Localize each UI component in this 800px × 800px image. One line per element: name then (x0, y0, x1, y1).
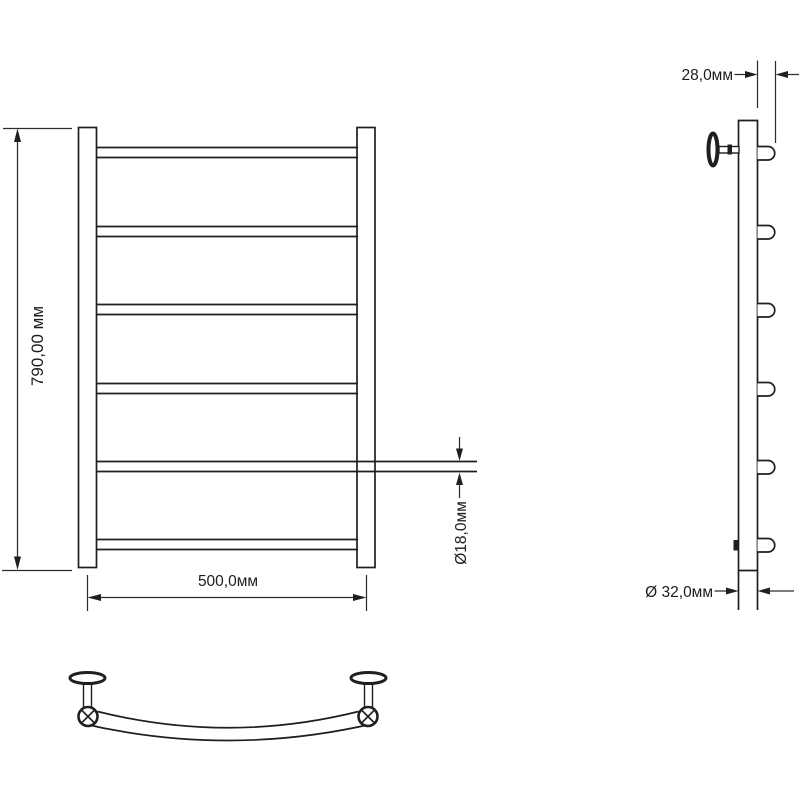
rung-profile (758, 461, 775, 475)
dimension-rung-diameter-label: Ø18,0мм (453, 501, 470, 565)
dimension-rung-diameter: Ø18,0мм (453, 437, 470, 565)
arrowhead-down-icon (456, 449, 463, 462)
dimension-width: 500,0мм (88, 573, 367, 611)
arrowhead-right-icon (726, 588, 739, 595)
front-rungs (96, 148, 477, 550)
arrowhead-right-icon (745, 71, 758, 78)
side-view: 28,0мм Ø 32,0мм (645, 61, 799, 611)
dimension-height-label: 790,00 мм (28, 306, 47, 386)
arrowhead-up-icon (14, 129, 21, 143)
dimension-post-diameter-label: Ø 32,0мм (645, 584, 713, 601)
curved-rung-near-edge (98, 712, 359, 728)
bracket-flange (709, 134, 718, 166)
bracket-flange (70, 673, 105, 684)
wall-bracket-bottom (734, 540, 739, 551)
top-right-mount (351, 673, 386, 727)
dimension-height: 790,00 мм (2, 129, 72, 571)
bracket-flange (351, 673, 386, 684)
rung-profile (758, 383, 775, 397)
curved-rung-far-edge (80, 723, 376, 741)
rung-profile (758, 226, 775, 240)
bracket-collar (728, 145, 733, 155)
arrowhead-right-icon (353, 594, 367, 601)
side-post (739, 121, 758, 611)
dimension-wall-offset-label: 28,0мм (682, 67, 733, 84)
front-left-post (79, 128, 97, 568)
wall-bracket-top (709, 134, 740, 166)
bracket-stem (365, 682, 373, 707)
dimension-post-diameter: Ø 32,0мм (645, 584, 794, 601)
arrowhead-left-icon (88, 594, 102, 601)
technical-drawing-page: 790,00 мм 500,0мм Ø18,0мм (0, 0, 800, 800)
top-view (70, 673, 386, 741)
dimension-width-label: 500,0мм (198, 573, 258, 590)
top-left-mount (70, 673, 105, 727)
towel-rail-drawing: 790,00 мм 500,0мм Ø18,0мм (0, 0, 800, 800)
rung-profile (758, 539, 775, 553)
arrowhead-down-icon (14, 557, 21, 571)
side-rung-profiles (758, 147, 775, 553)
front-right-post (357, 128, 375, 568)
rung-profile (758, 304, 775, 318)
rung-profile (758, 147, 775, 161)
bracket-stem (84, 682, 92, 707)
front-view: 790,00 мм 500,0мм Ø18,0мм (2, 128, 477, 612)
